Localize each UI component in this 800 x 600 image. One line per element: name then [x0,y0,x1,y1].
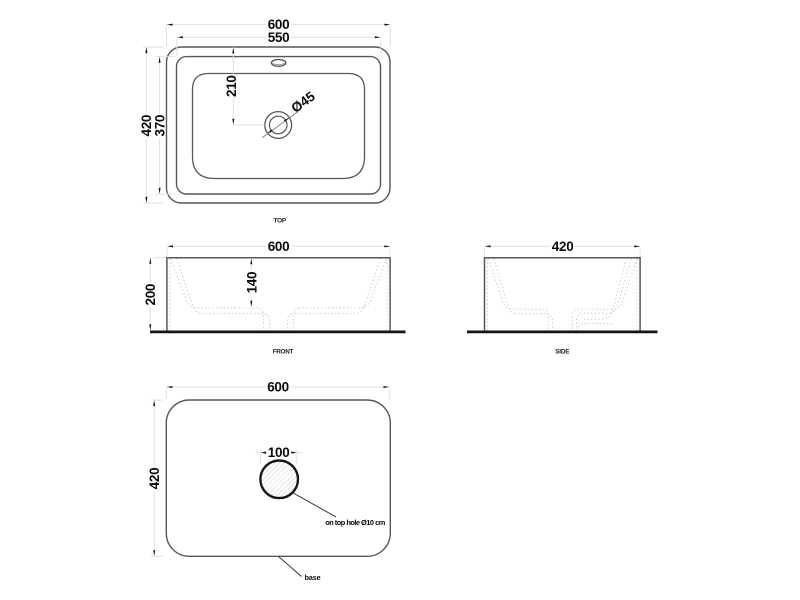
svg-text:550: 550 [268,30,290,45]
svg-text:200: 200 [143,284,158,306]
svg-text:370: 370 [152,115,167,137]
svg-text:FRONT: FRONT [273,348,294,355]
svg-text:210: 210 [224,75,239,97]
svg-text:Ø45: Ø45 [288,88,318,115]
svg-text:on top hole Ø10 cm: on top hole Ø10 cm [325,518,386,527]
svg-text:600: 600 [267,380,289,395]
svg-text:TOP: TOP [274,217,287,224]
svg-text:140: 140 [244,272,259,294]
svg-text:600: 600 [268,239,290,254]
svg-text:420: 420 [147,468,162,490]
svg-text:base: base [305,573,321,582]
svg-text:SIDE: SIDE [555,348,570,355]
svg-text:420: 420 [552,239,574,254]
svg-text:100: 100 [268,445,290,460]
